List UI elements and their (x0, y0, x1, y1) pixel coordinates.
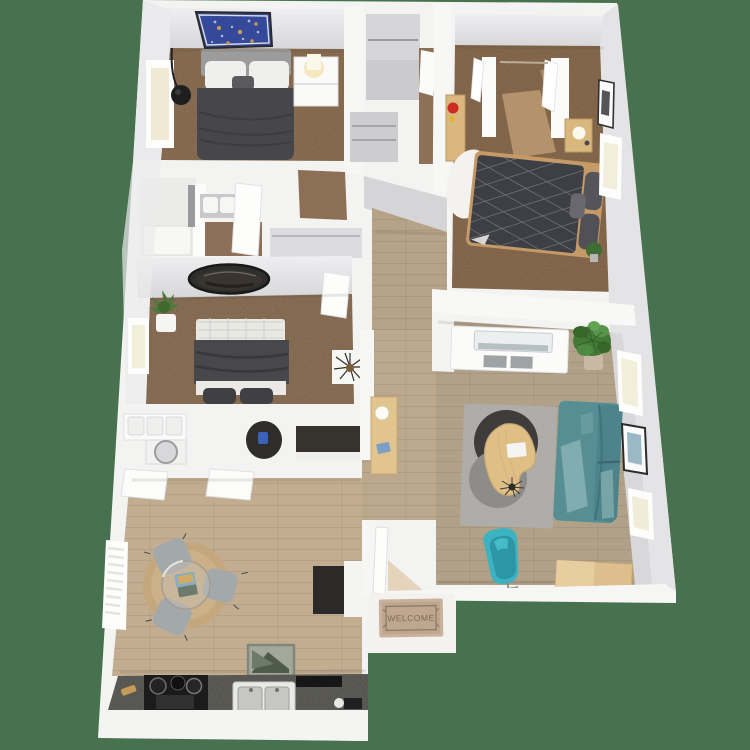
svg-text:WELCOME: WELCOME (387, 613, 435, 624)
